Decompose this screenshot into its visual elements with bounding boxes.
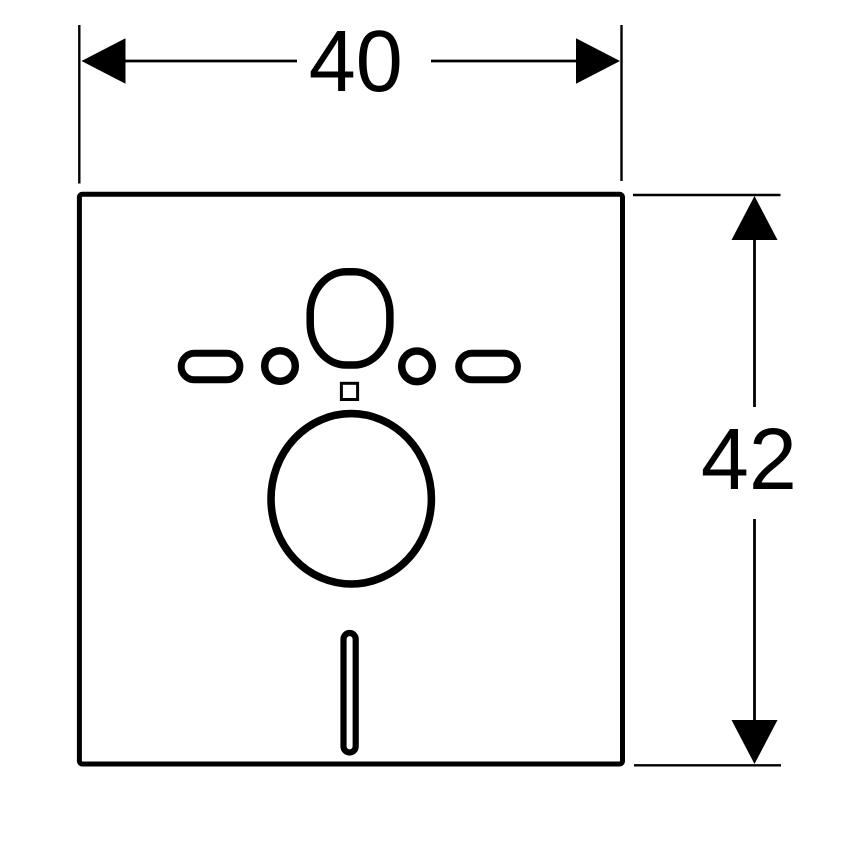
svg-text:42: 42 bbox=[701, 411, 797, 508]
svg-text:40: 40 bbox=[309, 13, 403, 110]
